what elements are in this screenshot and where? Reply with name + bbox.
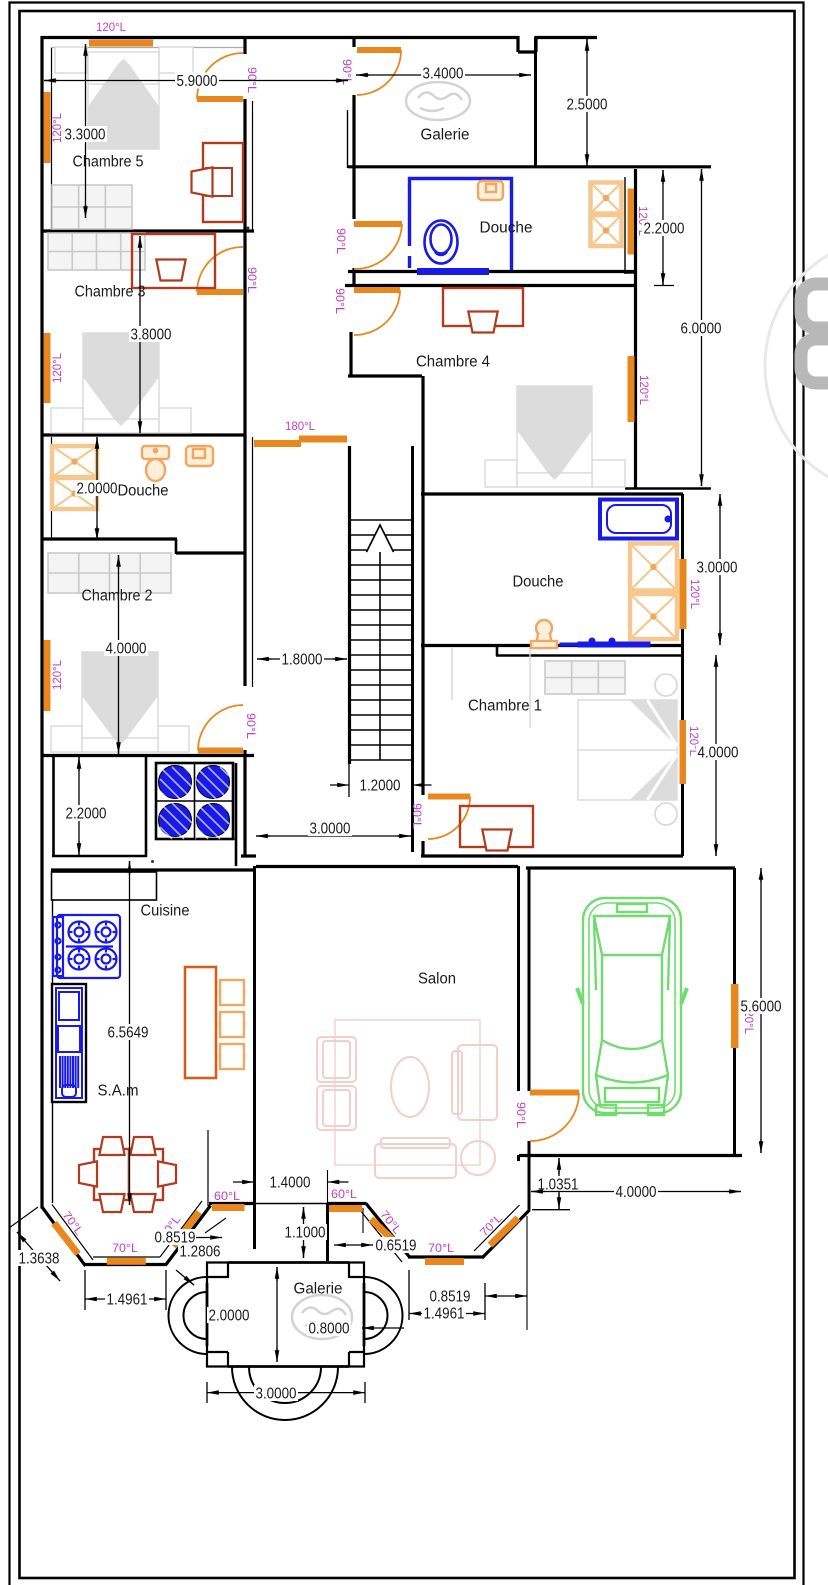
svg-text:2.5000: 2.5000 [567, 96, 608, 113]
svg-text:120°L: 120°L [637, 375, 649, 406]
svg-text:Chambre 5: Chambre 5 [73, 153, 144, 170]
svg-text:0.8519: 0.8519 [430, 1288, 471, 1305]
svg-text:1.1000: 1.1000 [285, 1224, 326, 1241]
svg-text:3.0000: 3.0000 [256, 1385, 297, 1402]
svg-text:90°L: 90°L [334, 228, 346, 255]
svg-text:Chambre 1: Chambre 1 [468, 697, 542, 714]
svg-text:1.3638: 1.3638 [19, 1250, 60, 1267]
svg-text:3.3000: 3.3000 [65, 126, 106, 143]
svg-text:Chambre 4: Chambre 4 [416, 353, 490, 370]
svg-text:Galerie: Galerie [421, 126, 470, 143]
svg-text:1.8000: 1.8000 [282, 651, 323, 668]
svg-text:1.4961: 1.4961 [107, 1291, 148, 1308]
svg-text:6.0000: 6.0000 [681, 320, 722, 337]
svg-text:3.0000: 3.0000 [697, 559, 738, 576]
svg-text:4.0000: 4.0000 [616, 1184, 657, 1201]
svg-text:1.4961: 1.4961 [424, 1305, 465, 1322]
svg-text:2.2000: 2.2000 [644, 220, 685, 237]
svg-text:5.9000: 5.9000 [177, 73, 218, 90]
svg-text:Douche: Douche [480, 219, 533, 236]
svg-text:0.6519: 0.6519 [376, 1237, 417, 1254]
svg-text:180°L: 180°L [285, 421, 316, 433]
svg-text:4.0000: 4.0000 [698, 744, 739, 761]
svg-text:90°L: 90°L [514, 1102, 526, 1129]
svg-text:90°L: 90°L [245, 267, 257, 294]
svg-text:2.0000: 2.0000 [209, 1307, 250, 1324]
svg-text:90°L: 90°L [410, 803, 422, 830]
svg-text:1.4000: 1.4000 [270, 1174, 311, 1191]
svg-text:120°L: 120°L [52, 659, 64, 690]
svg-text:70°L: 70°L [112, 1243, 139, 1255]
svg-text:Douche: Douche [118, 482, 169, 499]
svg-text:Chambre 3: Chambre 3 [75, 283, 146, 300]
svg-text:3.0000: 3.0000 [310, 820, 351, 837]
svg-text:5.6000: 5.6000 [741, 998, 782, 1015]
svg-text:6.5649: 6.5649 [108, 1024, 149, 1041]
svg-text:120°L: 120°L [688, 579, 700, 610]
svg-text:2.2000: 2.2000 [66, 805, 107, 822]
svg-text:4.0000: 4.0000 [106, 640, 147, 657]
svg-text:S.A.m: S.A.m [98, 1082, 139, 1099]
svg-text:120°L: 120°L [96, 22, 127, 34]
svg-text:70°L: 70°L [428, 1243, 455, 1255]
svg-text:90°L: 90°L [244, 713, 256, 740]
svg-text:Salon: Salon [418, 970, 456, 987]
svg-text:90°L: 90°L [333, 288, 345, 315]
svg-text:120°L: 120°L [52, 352, 64, 383]
svg-text:120°L: 120°L [52, 112, 64, 143]
svg-text:0.8000: 0.8000 [309, 1320, 350, 1337]
svg-text:1.2806: 1.2806 [180, 1243, 221, 1260]
svg-text:Douche: Douche [513, 573, 564, 590]
svg-text:3.8000: 3.8000 [131, 326, 172, 343]
svg-text:1.2000: 1.2000 [360, 777, 401, 794]
svg-text:Cuisine: Cuisine [141, 902, 190, 919]
svg-text:2.0000: 2.0000 [77, 480, 118, 497]
svg-text:3.4000: 3.4000 [423, 65, 464, 82]
svg-text:Galerie: Galerie [294, 1280, 343, 1297]
svg-text:60°L: 60°L [214, 1191, 241, 1203]
svg-text:60°L: 60°L [331, 1189, 358, 1201]
svg-text:Chambre 2: Chambre 2 [82, 587, 153, 604]
